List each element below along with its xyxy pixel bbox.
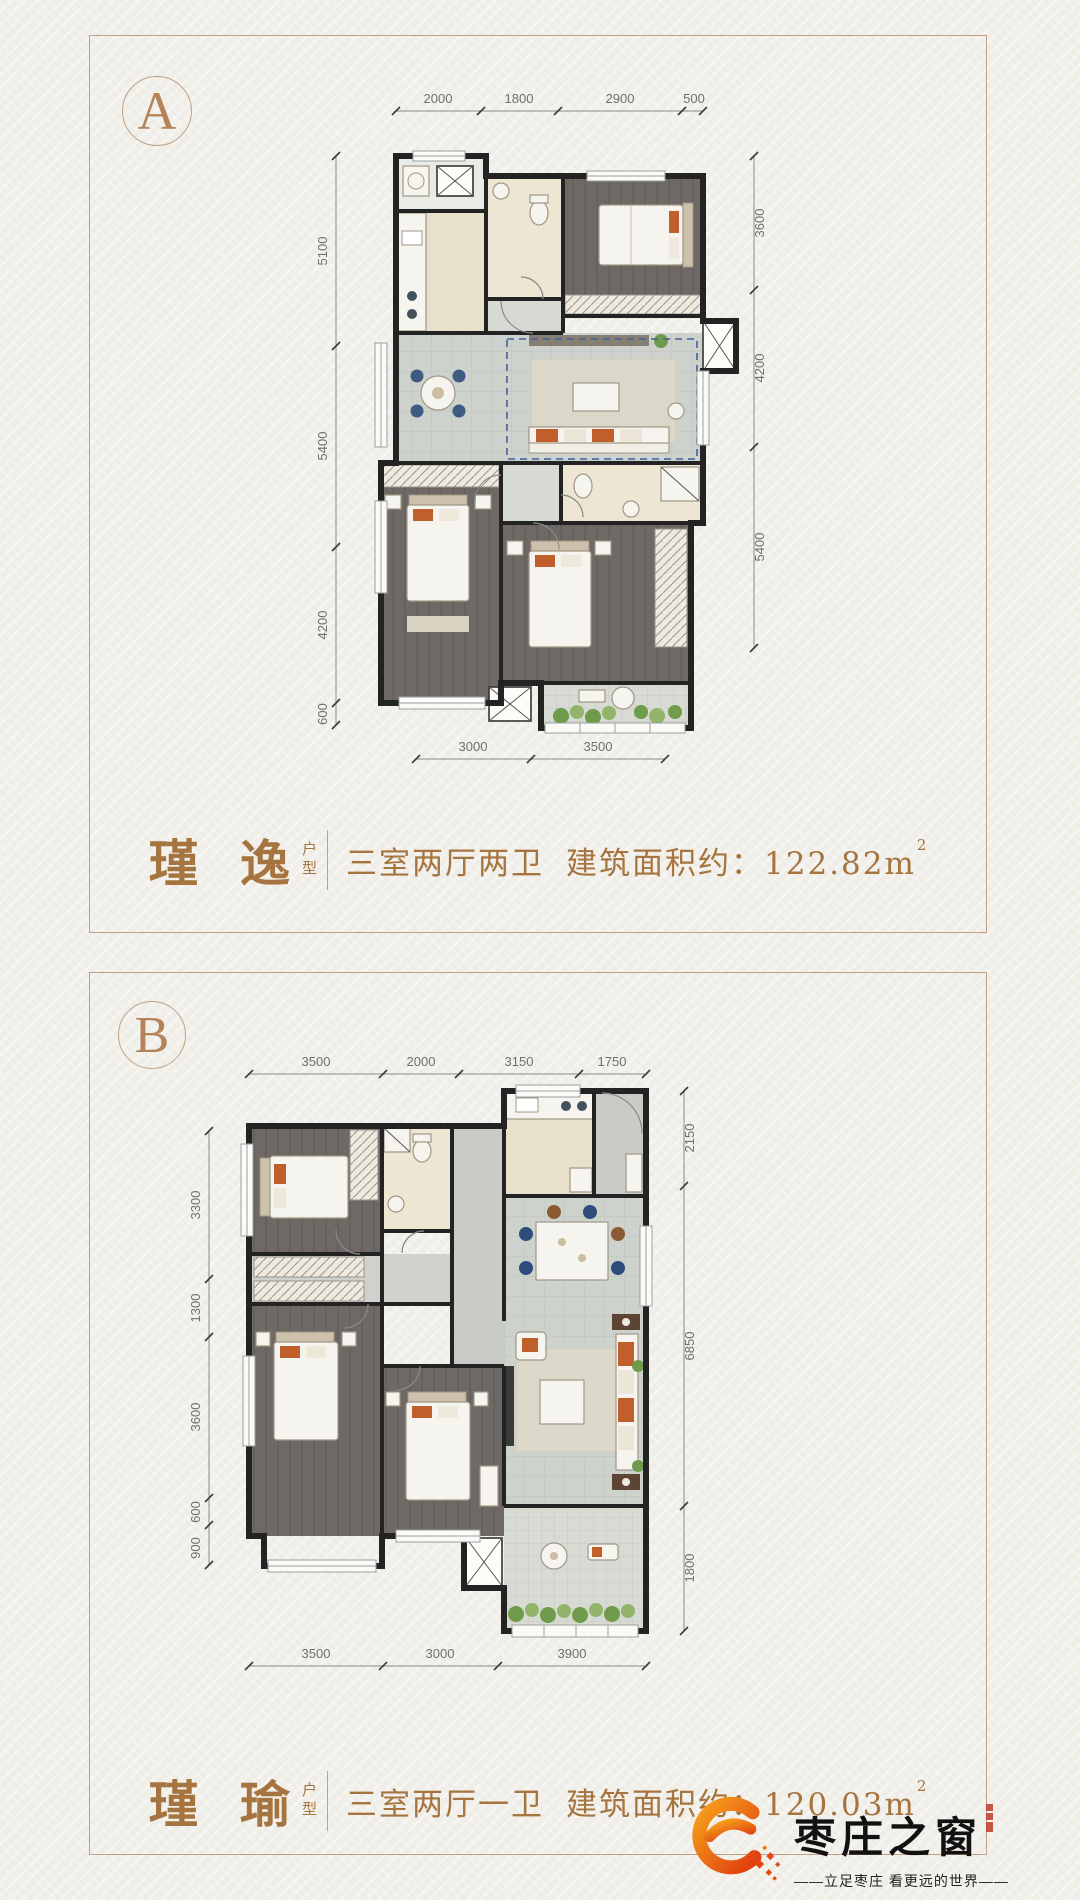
dim-label: 2900 [606,91,635,106]
dim-label: 3500 [302,1646,331,1661]
plan-a-badge-letter: A [138,80,177,142]
dim-label: 5100 [315,237,330,266]
dim-label: 3900 [558,1646,587,1661]
dim-label: 1750 [598,1054,627,1069]
dims-a-bottom: 3000 3500 [412,739,669,763]
site-logo: 枣庄之窗 ——立足枣庄 看更远的世界—— [676,1788,1020,1896]
floor-plan-b: 3500 2000 3150 1750 3300 1300 3600 600 9… [164,1036,724,1696]
logo-text-block: 枣庄之窗 ——立足枣庄 看更远的世界—— [794,1788,1009,1891]
plan-a-description: 三室两厅两卫建筑面积约：122.82m2 [346,838,927,883]
dim-label: 5400 [315,432,330,461]
plan-a-name: 瑾 逸 [149,824,302,896]
dim-label: 2000 [407,1054,436,1069]
plan-a-caption: 瑾 逸 户 型 三室两厅两卫建筑面积约：122.82m2 [90,824,986,896]
dim-label: 1800 [505,91,534,106]
dim-label: 3150 [505,1054,534,1069]
dim-label: 500 [683,91,705,106]
dim-label: 4200 [315,611,330,640]
signature-seal [986,1804,993,1832]
dim-label: 3500 [302,1054,331,1069]
dim-label: 1300 [188,1294,203,1323]
plan-a-badge: A [122,76,192,146]
dim-label: 600 [315,703,330,725]
dim-label: 3300 [188,1191,203,1220]
plan-b-name: 瑾 瑜 [149,1765,302,1837]
dim-label: 900 [188,1537,203,1559]
floor-plan-a: 2000 1800 2900 500 5100 5400 4200 600 36… [231,71,791,791]
dim-label: 1800 [682,1554,697,1583]
dim-label: 2000 [424,91,453,106]
dim-label: 5400 [752,533,767,562]
dim-label: 6850 [682,1332,697,1361]
dim-label: 3000 [459,739,488,754]
plan-b-panel: B [89,972,987,1855]
dims-a-left: 5100 5400 4200 600 [315,152,340,729]
dims-a-top: 2000 1800 2900 500 [392,91,707,115]
dim-label: 3600 [188,1403,203,1432]
dims-b-left: 3300 1300 3600 600 900 [188,1127,213,1569]
dim-label: 600 [188,1501,203,1523]
dims-b-bottom: 3500 3000 3900 [245,1646,650,1670]
logo-tagline: ——立足枣庄 看更远的世界—— [794,1871,1009,1891]
dim-label: 3000 [426,1646,455,1661]
logo-brand: 枣庄之窗 [794,1813,982,1862]
dim-label: 4200 [752,354,767,383]
plan-a-panel: A [89,35,987,933]
plan-a-type-label: 户 型 [302,841,317,879]
flyer-page: A [0,0,1080,1900]
dim-label: 3500 [584,739,613,754]
caption-divider [327,830,328,890]
caption-divider [327,1771,328,1831]
dim-label: 3600 [752,209,767,238]
dims-b-right: 2150 6850 1800 [680,1087,697,1635]
logo-e-swirl-icon [676,1788,788,1900]
dims-a-right: 3600 4200 5400 [750,152,767,652]
plan-b-type-label: 户 型 [302,1782,317,1820]
dim-label: 2150 [682,1124,697,1153]
dims-b-top: 3500 2000 3150 1750 [245,1054,650,1078]
